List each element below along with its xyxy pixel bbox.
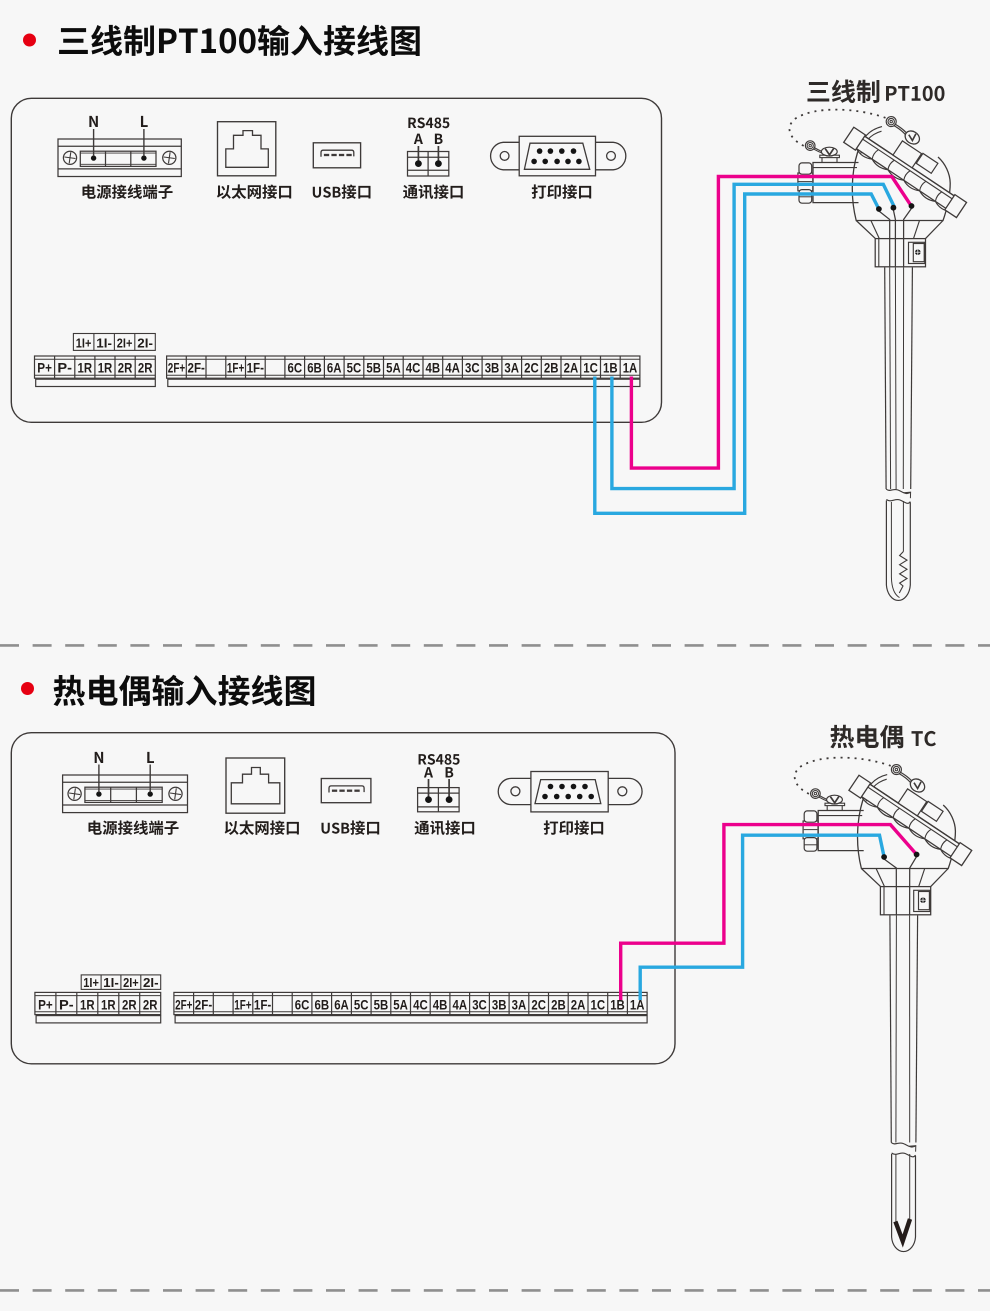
svg-text:3C: 3C [465,361,480,376]
svg-text:P-: P- [59,997,74,1012]
svg-text:6B: 6B [307,361,322,376]
svg-text:4C: 4C [406,361,421,376]
svg-text:2R: 2R [138,361,153,376]
svg-text:2F-: 2F- [188,361,205,376]
svg-text:1R: 1R [78,361,93,376]
svg-text:2B: 2B [551,997,566,1012]
svg-text:5C: 5C [347,361,362,376]
svg-text:1A: 1A [630,997,645,1012]
svg-text:6B: 6B [315,997,330,1012]
svg-text:3A: 3A [512,997,527,1012]
svg-text:4A: 4A [453,997,468,1012]
svg-text:1A: 1A [623,361,638,376]
svg-text:2I-: 2I- [137,336,153,350]
svg-text:6C: 6C [295,997,310,1012]
svg-text:2R: 2R [122,997,137,1012]
svg-text:2F-: 2F- [195,997,212,1012]
svg-text:1I-: 1I- [103,976,119,990]
svg-text:3C: 3C [472,997,487,1012]
svg-text:2A: 2A [564,361,579,376]
svg-text:2F+: 2F+ [175,997,192,1012]
svg-text:1I+: 1I+ [76,336,92,350]
svg-text:2B: 2B [544,361,559,376]
svg-text:2C: 2C [531,997,546,1012]
svg-text:2I+: 2I+ [123,976,139,990]
svg-text:5B: 5B [366,361,381,376]
svg-text:5C: 5C [354,997,369,1012]
svg-text:P-: P- [57,361,72,376]
svg-text:3B: 3B [485,361,500,376]
svg-text:1B: 1B [610,997,625,1012]
svg-text:1B: 1B [603,361,618,376]
svg-text:2A: 2A [571,997,586,1012]
svg-text:P+: P+ [38,997,53,1012]
svg-text:2F+: 2F+ [168,361,185,376]
svg-text:3B: 3B [492,997,507,1012]
svg-text:2I+: 2I+ [117,336,133,350]
svg-text:5A: 5A [393,997,408,1012]
svg-text:4B: 4B [426,361,441,376]
svg-text:2C: 2C [524,361,539,376]
svg-text:1C: 1C [591,997,606,1012]
svg-text:4B: 4B [433,997,448,1012]
svg-text:1F-: 1F- [247,361,264,376]
svg-text:1C: 1C [583,361,598,376]
svg-text:1R: 1R [101,997,116,1012]
svg-text:2I-: 2I- [143,976,159,990]
svg-text:1R: 1R [98,361,113,376]
svg-text:3A: 3A [504,361,519,376]
svg-text:5B: 5B [374,997,389,1012]
svg-text:1F+: 1F+ [234,997,251,1012]
svg-text:6A: 6A [334,997,349,1012]
svg-text:6A: 6A [327,361,342,376]
svg-text:1F+: 1F+ [227,361,244,376]
svg-text:2R: 2R [118,361,133,376]
svg-text:4C: 4C [413,997,428,1012]
svg-text:1I+: 1I+ [83,976,99,990]
svg-text:6C: 6C [288,361,303,376]
svg-text:1R: 1R [80,997,95,1012]
svg-text:P+: P+ [37,361,52,376]
svg-text:2R: 2R [143,997,158,1012]
svg-text:4A: 4A [445,361,460,376]
svg-text:1I-: 1I- [96,336,112,350]
svg-text:5A: 5A [386,361,401,376]
svg-text:1F-: 1F- [254,997,271,1012]
